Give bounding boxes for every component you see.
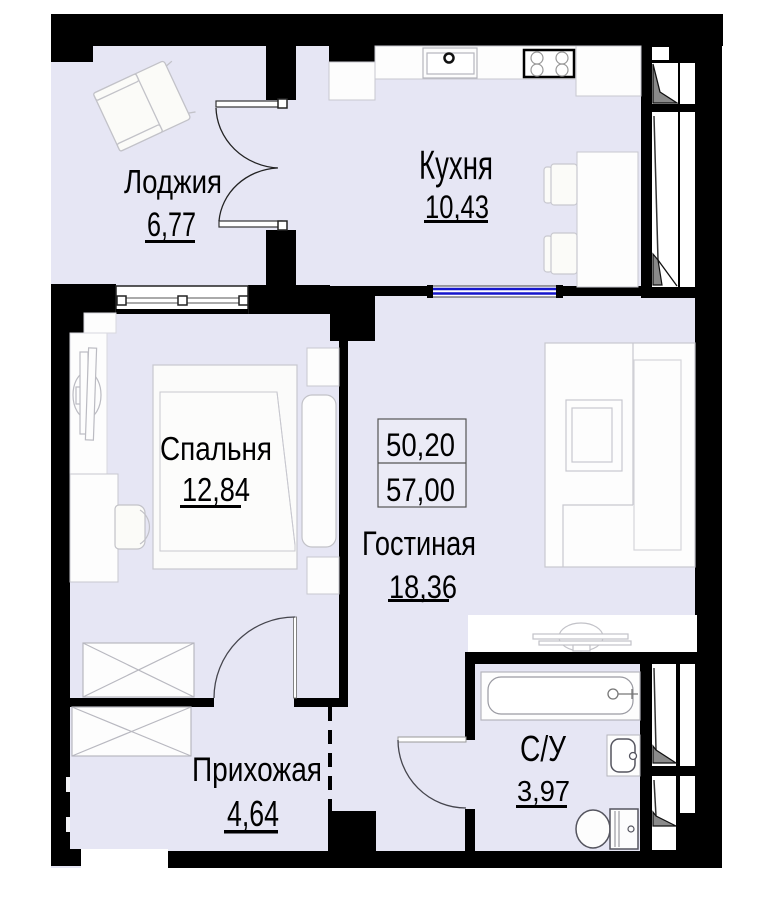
svg-text:С/У: С/У	[520, 728, 567, 769]
svg-text:3,97: 3,97	[517, 776, 570, 808]
svg-text:Спальня: Спальня	[160, 430, 272, 467]
svg-text:6,77: 6,77	[147, 206, 196, 244]
svg-text:50,20: 50,20	[386, 427, 455, 463]
svg-text:10,43: 10,43	[425, 189, 489, 225]
svg-text:Кухня: Кухня	[419, 142, 493, 188]
svg-text:12,84: 12,84	[182, 471, 250, 508]
svg-text:57,00: 57,00	[386, 472, 455, 508]
svg-text:Лоджия: Лоджия	[124, 163, 222, 200]
svg-text:Гостиная: Гостиная	[362, 525, 476, 563]
svg-text:Прихожая: Прихожая	[192, 751, 322, 789]
svg-text:4,64: 4,64	[227, 793, 279, 834]
